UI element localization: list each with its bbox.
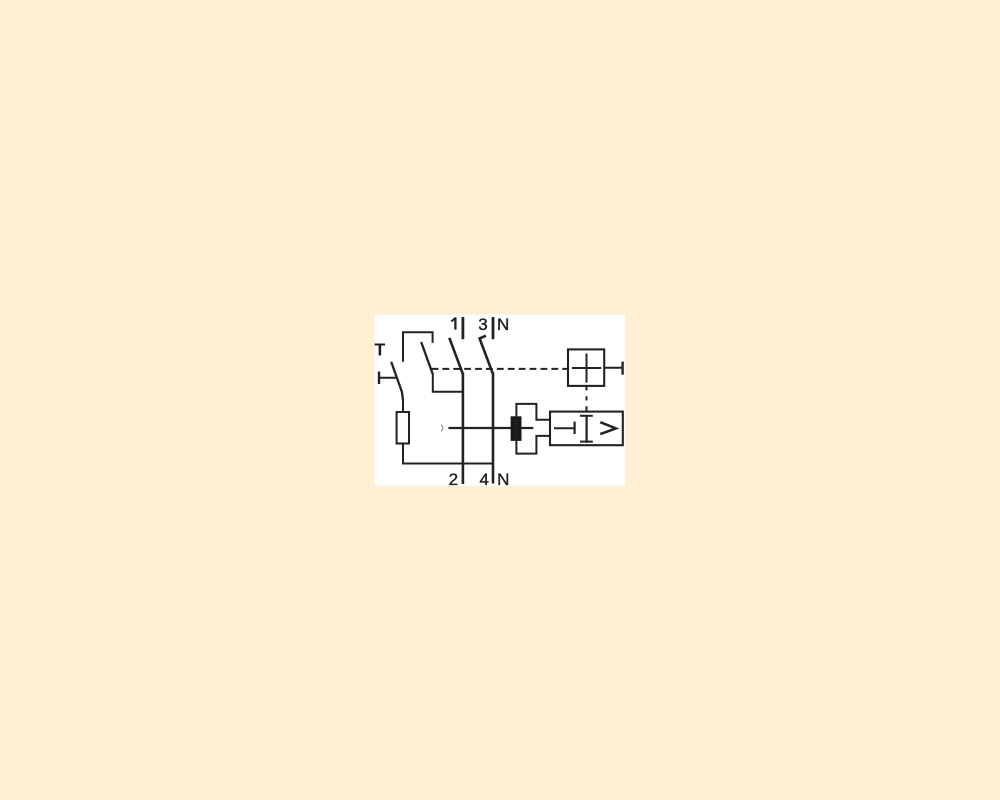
svg-text:N: N	[497, 470, 509, 489]
svg-text:4: 4	[479, 470, 488, 489]
svg-text:2: 2	[449, 470, 458, 489]
svg-text:3: 3	[478, 315, 487, 334]
svg-text:N: N	[497, 315, 509, 334]
svg-text:T: T	[375, 340, 386, 360]
